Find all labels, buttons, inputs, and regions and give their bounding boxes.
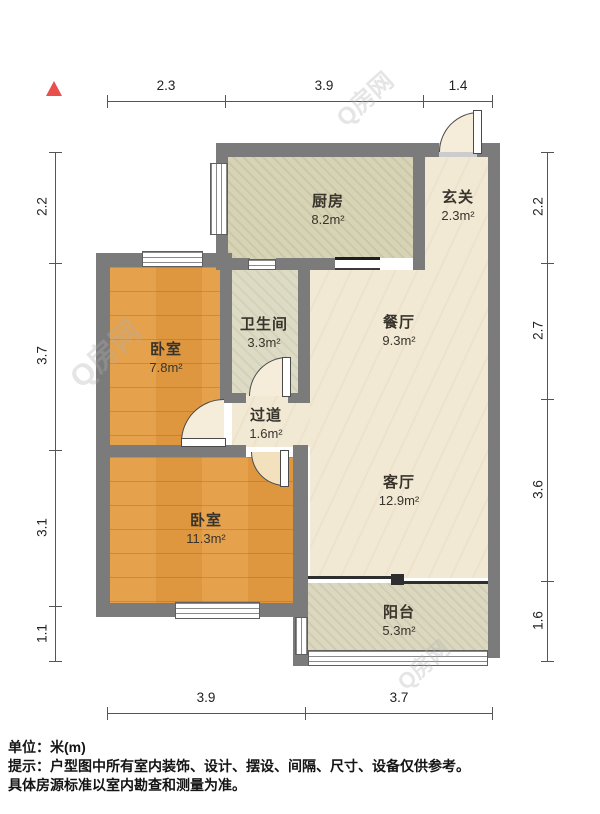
- dim-right-3: 3.6: [531, 470, 546, 510]
- wall-kitchen-entry-divider: [413, 155, 425, 270]
- kitchen-window: [210, 163, 228, 235]
- dim-tick: [305, 707, 306, 720]
- bathroom-label: 卫生间 3.3m²: [240, 313, 288, 350]
- dim-left-1: 2.2: [35, 187, 50, 227]
- watermark: Q房网: [327, 62, 400, 133]
- dim-right-1: 2.2: [531, 187, 546, 227]
- kitchen-label: 厨房 8.2m²: [311, 190, 344, 227]
- balcony-side-window: [295, 617, 308, 655]
- dim-line-top: [107, 101, 493, 102]
- dim-right-4: 1.6: [531, 601, 546, 641]
- dim-tick: [423, 95, 424, 108]
- dim-tick: [49, 606, 62, 607]
- balcony-sliding-door-left: [308, 576, 393, 579]
- dim-bottom-1: 3.9: [186, 690, 226, 705]
- entry-label: 玄关 2.3m²: [441, 186, 474, 223]
- wall-bathroom-left: [220, 258, 232, 398]
- bedroom2-door-leaf: [280, 450, 289, 487]
- footer-unit: 单位：米(m): [8, 737, 86, 757]
- entry-door-leaf: [473, 110, 482, 154]
- dim-tick: [49, 450, 62, 451]
- bedroom1-label: 卧室 7.8m²: [149, 338, 182, 375]
- kitchen-serving-window: [335, 257, 380, 270]
- dim-tick: [107, 95, 108, 108]
- dim-tick: [49, 152, 62, 153]
- bathroom-door-leaf: [282, 357, 291, 397]
- dim-tick: [492, 707, 493, 720]
- kitchen-door-opening: [380, 258, 413, 270]
- footer-tip: 提示：户型图中所有室内装饰、设计、摆设、间隔、尺寸、设备仅供参考。: [8, 756, 470, 776]
- floor-plan: 厨房 8.2m² 玄关 2.3m² 卫生间 3.3m² 卧室 7.8m² 过道 …: [0, 0, 600, 814]
- dim-tick: [492, 95, 493, 108]
- bedroom1-door-leaf: [181, 438, 226, 447]
- dim-tick: [541, 399, 554, 400]
- dim-tick: [225, 95, 226, 108]
- dim-tick: [541, 263, 554, 264]
- dim-left-2: 3.7: [35, 336, 50, 376]
- dim-left-4: 1.1: [35, 614, 50, 654]
- dim-line-bottom: [107, 713, 493, 714]
- dim-line-right: [547, 152, 548, 662]
- dim-top-1: 2.3: [146, 78, 186, 93]
- living-label: 客厅 12.9m²: [379, 471, 419, 508]
- dim-tick: [541, 581, 554, 582]
- dim-tick: [49, 263, 62, 264]
- dim-tick: [107, 707, 108, 720]
- bedroom1-window: [142, 251, 203, 267]
- hallway-label: 过道 1.6m²: [249, 404, 282, 441]
- dining-living-floor: [310, 262, 488, 578]
- bedroom2-window: [175, 602, 260, 619]
- dim-tick: [541, 152, 554, 153]
- wall-right: [488, 143, 500, 658]
- bathroom-window: [248, 259, 276, 270]
- dim-tick: [541, 661, 554, 662]
- wall-bathroom-right: [298, 258, 310, 403]
- dim-right-2: 2.7: [531, 311, 546, 351]
- wall-left: [96, 253, 110, 617]
- dim-left-3: 3.1: [35, 508, 50, 548]
- dining-label: 餐厅 9.3m²: [382, 311, 415, 348]
- dim-line-left: [55, 152, 56, 662]
- north-arrow-icon: [46, 81, 62, 96]
- wall-bathroom-bottom-b: [288, 393, 310, 403]
- bedroom2-label: 卧室 11.3m²: [186, 509, 226, 546]
- balcony-label: 阳台 5.3m²: [382, 601, 415, 638]
- balcony-sliding-door-right: [402, 581, 488, 584]
- dim-top-2: 3.9: [304, 78, 344, 93]
- dim-tick: [49, 661, 62, 662]
- dim-top-3: 1.4: [438, 78, 478, 93]
- footer-tip2: 具体房源标准以室内勘查和测量为准。: [8, 775, 246, 795]
